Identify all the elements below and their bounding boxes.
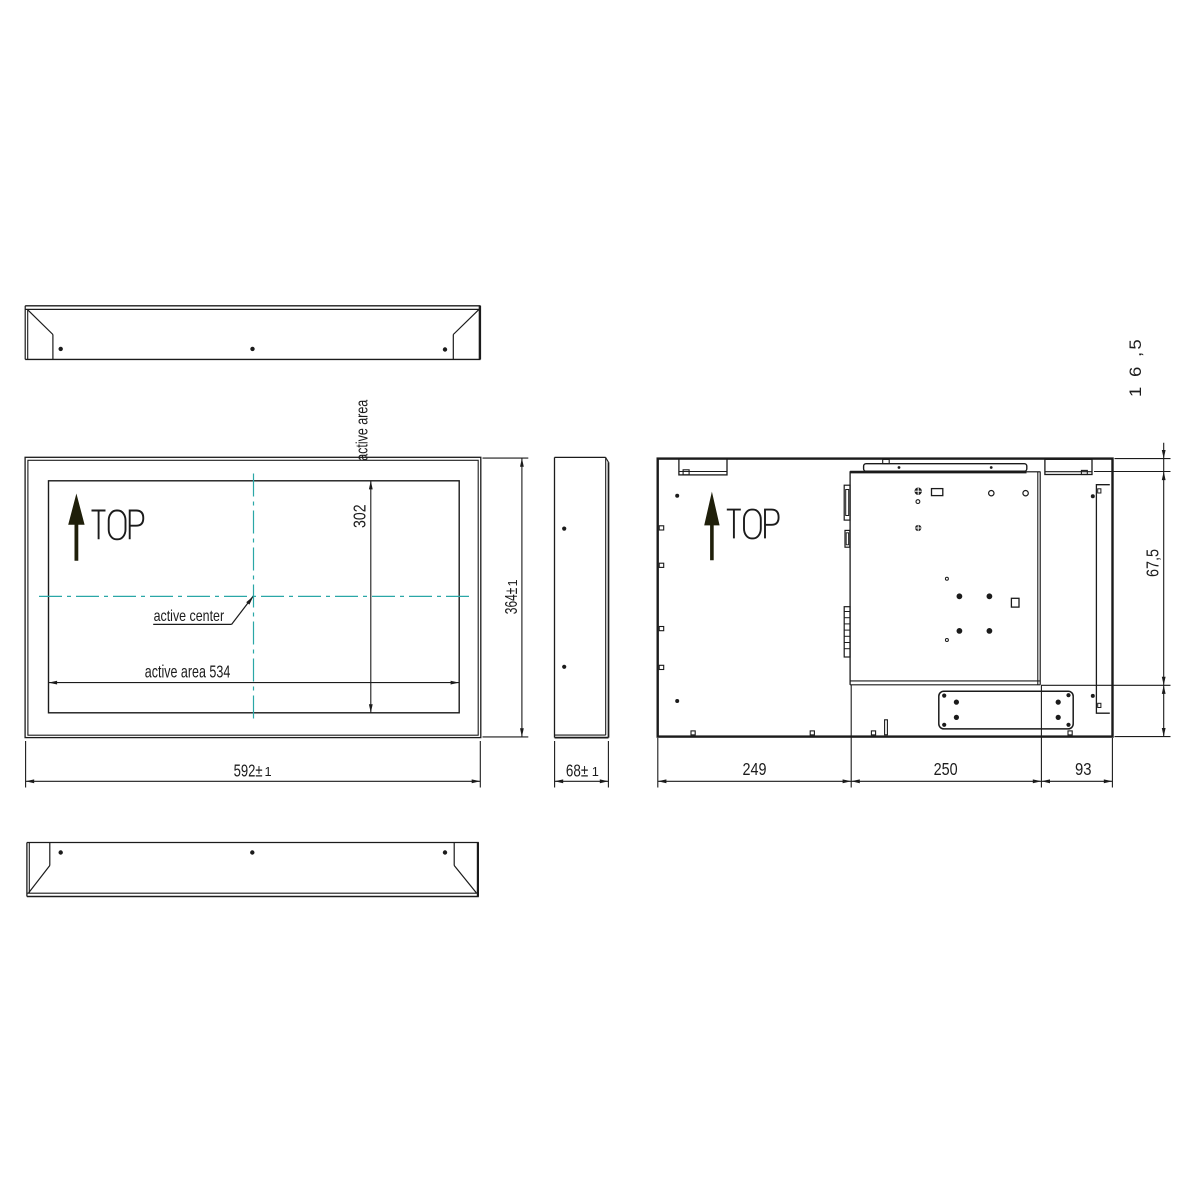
svg-text:93: 93	[1075, 759, 1092, 779]
svg-text:250: 250	[934, 759, 958, 779]
svg-text:1: 1	[505, 579, 520, 586]
svg-text:364±: 364±	[501, 587, 521, 614]
svg-text:active area: active area	[354, 400, 372, 461]
svg-text:68±: 68±	[566, 761, 589, 781]
svg-text:302: 302	[350, 504, 370, 528]
svg-text:249: 249	[743, 759, 767, 779]
svg-text:67,5: 67,5	[1142, 549, 1162, 577]
svg-text:1: 1	[265, 764, 272, 779]
svg-text:592±: 592±	[234, 761, 263, 781]
svg-text:1 6 ,5: 1 6 ,5	[1127, 337, 1145, 397]
svg-text:active area 534: active area 534	[145, 662, 231, 682]
svg-text:active center: active center	[154, 608, 225, 625]
svg-text:1: 1	[592, 764, 599, 779]
